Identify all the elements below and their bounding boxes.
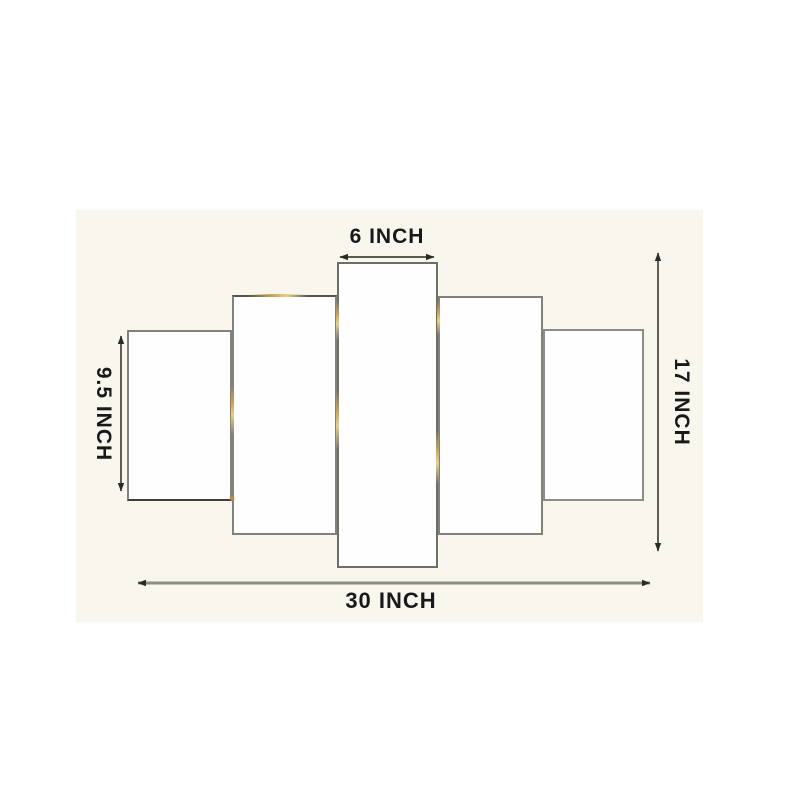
dimension-label-right-height: 17 INCH	[669, 358, 693, 446]
canvas-panel-2	[232, 295, 337, 535]
dimension-label-top-width: 6 INCH	[327, 225, 447, 249]
canvas-panel-5	[543, 329, 644, 501]
canvas-panel-1	[127, 330, 232, 501]
dimension-label-bottom-width: 30 INCH	[291, 588, 491, 614]
canvas-panel-4	[438, 296, 543, 535]
canvas-panel-3	[337, 262, 438, 568]
product-dimension-diagram: 6 INCH 9.5 INCH 17 INCH 30 INCH	[0, 0, 800, 800]
dimension-label-left-height: 9.5 INCH	[91, 367, 115, 461]
